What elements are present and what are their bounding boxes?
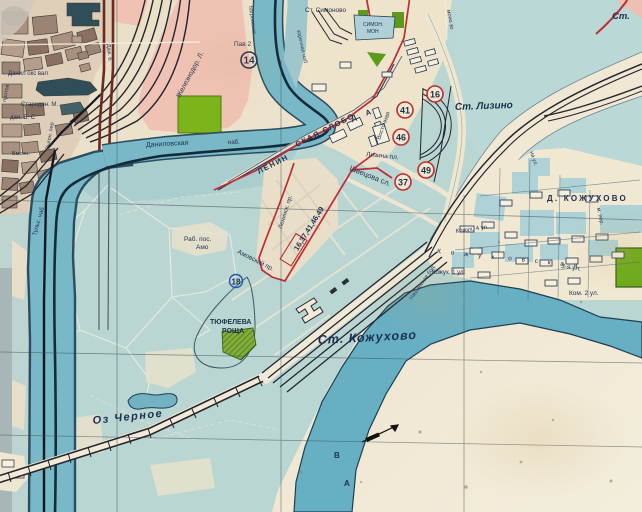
svg-text:РОЩА: РОЩА bbox=[222, 328, 244, 335]
svg-text:16: 16 bbox=[430, 90, 440, 100]
svg-text:Ст. Лизино: Ст. Лизино bbox=[455, 100, 513, 113]
svg-text:А: А bbox=[344, 479, 350, 488]
svg-text:В: В bbox=[334, 451, 340, 460]
svg-text:Ст. Симоново: Ст. Симоново bbox=[305, 7, 347, 14]
svg-text:дан. Б. С: дан. Б. С bbox=[10, 115, 36, 121]
svg-text:СИМОН.: СИМОН. bbox=[363, 22, 383, 28]
svg-text:Стародан. М.: Стародан. М. bbox=[21, 102, 58, 108]
svg-text:18: 18 bbox=[232, 278, 241, 287]
svg-text:Раб. пос.: Раб. пос. bbox=[184, 235, 211, 243]
svg-text:49: 49 bbox=[421, 166, 431, 176]
svg-text:Д. КОЖУХОВО: Д. КОЖУХОВО bbox=[547, 194, 628, 203]
svg-text:Амо: Амо bbox=[196, 244, 209, 251]
svg-text:Ком. 2 ул.: Ком. 2 ул. bbox=[569, 290, 599, 297]
svg-text:Ст.: Ст. bbox=[612, 11, 630, 22]
svg-text:41: 41 bbox=[400, 106, 410, 116]
svg-text:46: 46 bbox=[396, 133, 406, 143]
svg-text:Вмсон.: Вмсон. bbox=[12, 151, 30, 157]
svg-text:наб.: наб. bbox=[228, 140, 240, 146]
svg-text:МОН: МОН bbox=[367, 29, 379, 35]
svg-text:Данил окс вал: Данил окс вал bbox=[8, 71, 48, 77]
svg-text:37: 37 bbox=[398, 178, 408, 188]
svg-text:ТЮФЕЛЕВА: ТЮФЕЛЕВА bbox=[210, 319, 251, 326]
